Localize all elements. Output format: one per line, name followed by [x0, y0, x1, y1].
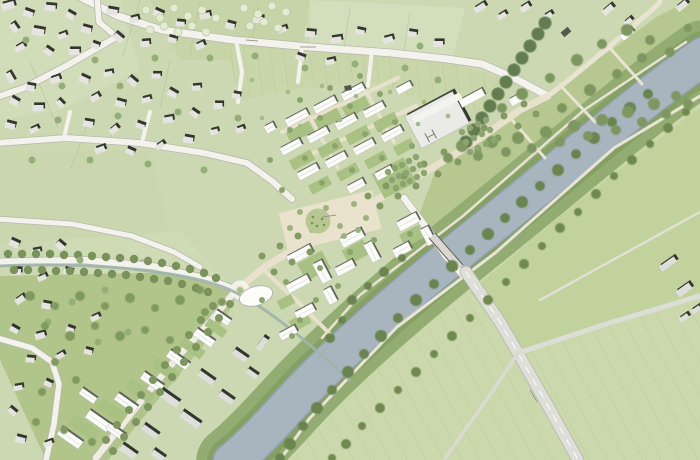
masterplan-map	[0, 0, 700, 460]
map-viewport	[0, 0, 700, 460]
plaza-big-tree	[306, 209, 331, 234]
